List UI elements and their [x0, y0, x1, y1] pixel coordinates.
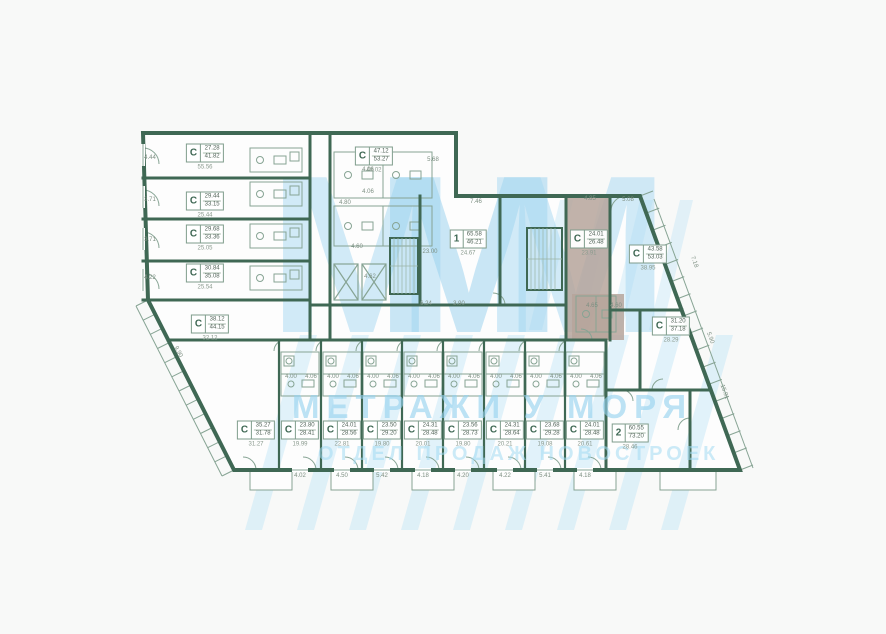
unit-area-bottom: 44.15 [208, 325, 226, 332]
unit-type: С [571, 231, 584, 248]
unit-area-bottom: 46.21 [465, 240, 483, 247]
unit-area-below: 55.56 [197, 165, 212, 171]
unit-area-below: 31.27 [248, 442, 263, 448]
unit-area-top: 24.01 [587, 232, 605, 240]
unit-label[interactable]: С 27.28 41.82 55.56 [186, 144, 224, 171]
unit-label[interactable]: 2 60.55 73.20 28.46 [612, 424, 649, 451]
floor-plan-svg: М М М [0, 0, 886, 634]
unit-label-box: С 30.84 35.08 [186, 264, 224, 283]
unit-area-top: 35.27 [254, 423, 272, 431]
unit-area-top: 23.80 [298, 423, 316, 431]
unit-area-top: 24.01 [583, 423, 601, 431]
unit-area-below: 48.02 [366, 168, 381, 174]
unit-area-top: 24.01 [340, 423, 358, 431]
unit-area-bottom: 31.78 [254, 431, 272, 438]
unit-type: С [187, 265, 200, 282]
unit-label[interactable]: С 23.68 29.28 19.08 [526, 421, 564, 448]
unit-area-below: 19.80 [374, 442, 389, 448]
unit-label[interactable]: С 23.80 28.41 19.99 [281, 421, 319, 448]
unit-area-bottom: 29.28 [543, 431, 561, 438]
unit-type: С [192, 316, 205, 333]
unit-type: С [356, 148, 369, 165]
unit-area-bottom: 28.48 [583, 431, 601, 438]
unit-area-bottom: 35.08 [203, 274, 221, 281]
unit-area-below: 32.12 [202, 336, 217, 342]
unit-area-bottom: 33.36 [203, 235, 221, 242]
unit-area-bottom: 53.03 [646, 255, 664, 262]
unit-label-box: С 43.58 53.03 [629, 245, 667, 264]
unit-area-top: 30.84 [203, 266, 221, 274]
unit-type: С [630, 246, 643, 263]
unit-area-bottom: 28.64 [503, 431, 521, 438]
unit-area-below: 19.08 [537, 442, 552, 448]
unit-label-box: 1 65.58 46.21 [450, 230, 487, 249]
unit-area-top: 29.44 [203, 194, 221, 202]
unit-type: С [405, 422, 418, 439]
unit-area-below: 25.05 [197, 246, 212, 252]
unit-label[interactable]: С 29.68 33.36 25.05 [186, 225, 224, 252]
unit-type: С [324, 422, 337, 439]
unit-area-bottom: 26.48 [587, 240, 605, 247]
unit-label[interactable]: С 23.56 28.73 19.80 [444, 421, 482, 448]
unit-type: С [187, 145, 200, 162]
unit-area-bottom: 28.73 [461, 431, 479, 438]
unit-area-top: 65.58 [465, 232, 483, 240]
unit-area-below: 19.80 [455, 442, 470, 448]
unit-label-box: С 38.12 44.15 [191, 315, 229, 334]
unit-area-below: 20.61 [577, 442, 592, 448]
unit-label[interactable]: С 43.58 53.03 38.95 [629, 245, 667, 272]
unit-area-top: 24.31 [503, 423, 521, 431]
unit-area-below: 38.95 [640, 266, 655, 272]
unit-area-bottom: 73.20 [627, 434, 645, 441]
unit-area-below: 25.44 [197, 213, 212, 219]
unit-type: С [364, 422, 377, 439]
unit-area-bottom: 53.27 [372, 157, 390, 164]
unit-label-box: С 23.68 29.28 [526, 421, 564, 440]
unit-label[interactable]: С 24.01 28.56 22.81 [323, 421, 361, 448]
unit-area-below: 28.29 [663, 338, 678, 344]
unit-area-top: 23.68 [543, 423, 561, 431]
unit-area-bottom: 28.56 [340, 431, 358, 438]
unit-area-below: 23.91 [581, 251, 596, 257]
unit-area-top: 38.12 [208, 317, 226, 325]
unit-label-box: С 24.01 28.56 [323, 421, 361, 440]
unit-label-box: С 24.31 28.48 [404, 421, 442, 440]
unit-label-box: С 35.27 31.78 [237, 421, 275, 440]
unit-area-below: 28.46 [622, 445, 637, 451]
unit-type: С [282, 422, 295, 439]
unit-label-box: С 24.31 28.64 [486, 421, 524, 440]
unit-label[interactable]: С 24.01 28.48 20.61 [566, 421, 604, 448]
unit-area-top: 31.20 [669, 319, 687, 327]
unit-label[interactable]: С 24.31 28.48 20.01 [404, 421, 442, 448]
unit-label-box: С 24.01 28.48 [566, 421, 604, 440]
unit-area-top: 47.12 [372, 149, 390, 157]
unit-label-box: С 23.50 29.20 [363, 421, 401, 440]
unit-label-selected[interactable]: С 24.01 26.48 23.91 [570, 230, 608, 257]
unit-area-below: 19.99 [292, 442, 307, 448]
unit-type: С [445, 422, 458, 439]
unit-label[interactable]: С 24.31 28.64 20.21 [486, 421, 524, 448]
unit-label[interactable]: С 47.12 53.27 48.02 [355, 147, 393, 174]
unit-label-box: С 29.44 33.15 [186, 192, 224, 211]
unit-label[interactable]: С 29.44 33.15 25.44 [186, 192, 224, 219]
unit-area-below: 25.54 [197, 285, 212, 291]
unit-type: С [527, 422, 540, 439]
unit-area-bottom: 37.18 [669, 327, 687, 334]
unit-area-below: 20.01 [415, 442, 430, 448]
unit-label-box: С 29.68 33.36 [186, 225, 224, 244]
unit-label-box: 2 60.55 73.20 [612, 424, 649, 443]
unit-area-top: 23.50 [380, 423, 398, 431]
unit-area-bottom: 28.41 [298, 431, 316, 438]
unit-area-top: 60.55 [627, 426, 645, 434]
unit-area-top: 43.58 [646, 247, 664, 255]
unit-type: С [238, 422, 251, 439]
unit-label-box: С 23.80 28.41 [281, 421, 319, 440]
unit-area-below: 24.67 [460, 251, 475, 257]
unit-label-box: С 31.20 37.18 [652, 317, 690, 336]
unit-label[interactable]: С 30.84 35.08 25.54 [186, 264, 224, 291]
unit-area-top: 29.68 [203, 227, 221, 235]
unit-area-top: 23.56 [461, 423, 479, 431]
unit-label-box: С 24.01 26.48 [570, 230, 608, 249]
unit-area-top: 27.28 [203, 146, 221, 154]
unit-area-bottom: 29.20 [380, 431, 398, 438]
unit-type: 2 [613, 425, 625, 442]
unit-label[interactable]: 1 65.58 46.21 24.67 [450, 230, 487, 257]
unit-area-below: 22.81 [334, 442, 349, 448]
unit-type: 1 [451, 231, 463, 248]
floor-plan-page: М М М МЕТРАЖИ У МОРЯ ОТД [0, 0, 886, 634]
unit-area-below: 20.21 [497, 442, 512, 448]
unit-label-box: С 27.28 41.82 [186, 144, 224, 163]
unit-label[interactable]: С 31.20 37.18 28.29 [652, 317, 690, 344]
unit-type: С [487, 422, 500, 439]
unit-type: С [653, 318, 666, 335]
unit-label-box: С 47.12 53.27 [355, 147, 393, 166]
unit-area-top: 24.31 [421, 423, 439, 431]
unit-label-box: С 23.56 28.73 [444, 421, 482, 440]
unit-type: С [187, 193, 200, 210]
unit-type: С [567, 422, 580, 439]
unit-area-bottom: 41.82 [203, 154, 221, 161]
unit-type: С [187, 226, 200, 243]
unit-label[interactable]: С 35.27 31.78 31.27 [237, 421, 275, 448]
unit-label[interactable]: С 38.12 44.15 32.12 [191, 315, 229, 342]
unit-label[interactable]: С 23.50 29.20 19.80 [363, 421, 401, 448]
unit-area-bottom: 28.48 [421, 431, 439, 438]
unit-area-bottom: 33.15 [203, 202, 221, 209]
